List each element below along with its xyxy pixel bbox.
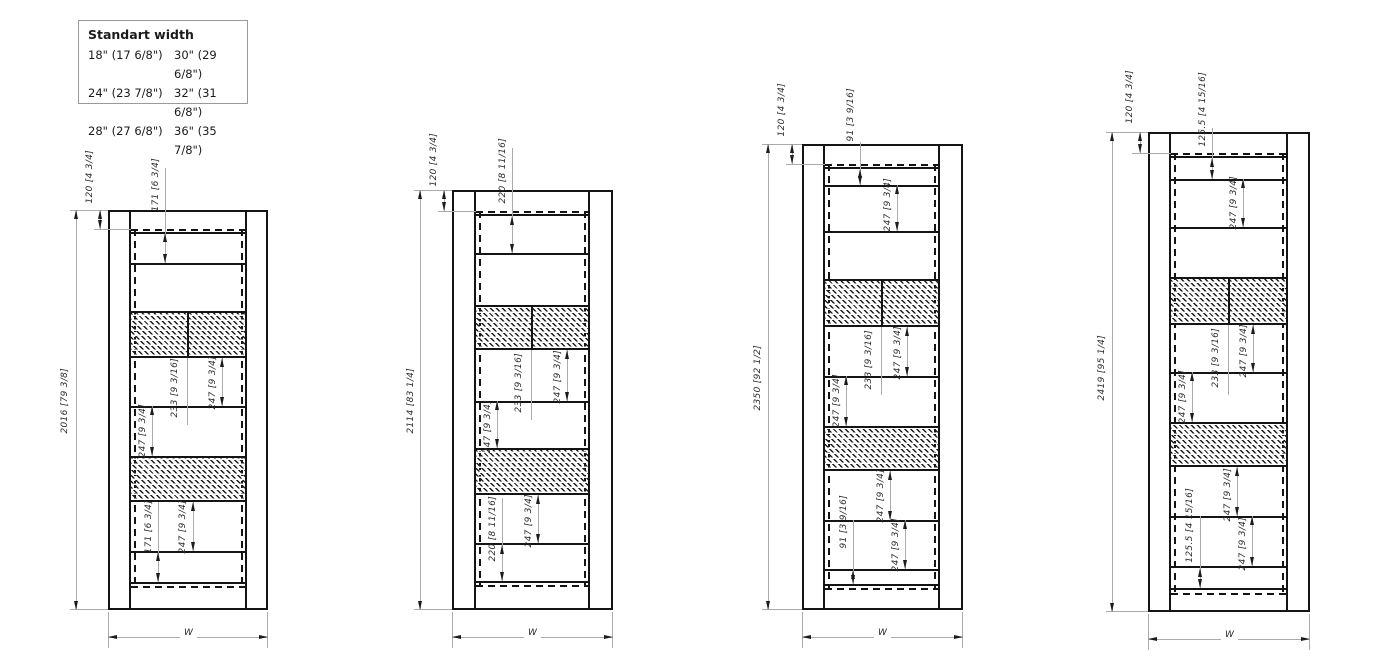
dim-arrow <box>766 144 770 153</box>
legend-grid: 18" (17 6/8") 30" (29 6/8") 24" (23 7/8"… <box>88 46 238 160</box>
dim-arrow <box>442 190 446 199</box>
dim-label: 171 [6 3/4] <box>151 158 162 211</box>
dim-label-height: 2016 [79 3/8] <box>60 368 71 434</box>
dim-label-height: 2350 [92 1/2] <box>753 345 764 411</box>
dim-label-top-offset: 120 [4 3/4] <box>1125 70 1136 123</box>
rail-line <box>131 232 245 234</box>
dim-label: 125.5 [4 15/16] <box>1185 488 1196 563</box>
dim-label: 233 [9 3/16] <box>170 358 181 417</box>
dim-arrow <box>790 144 794 153</box>
dim-arrow <box>1250 516 1254 525</box>
ext-line <box>94 229 131 230</box>
dim-arrow <box>790 155 794 164</box>
ext-line <box>1309 614 1310 650</box>
dim-arrow <box>903 560 907 569</box>
dim-arrow <box>1251 363 1255 372</box>
dim-arrow <box>1138 132 1142 141</box>
legend-entry: 24" (23 7/8") <box>88 84 174 122</box>
dim-arrow <box>1210 170 1214 179</box>
dim-label: 247 [9 3/4] <box>876 469 887 522</box>
hatch-divider <box>881 279 883 327</box>
dim-arrow <box>851 575 855 584</box>
dim-label: 247 [9 3/4] <box>883 178 894 231</box>
dim-arrow <box>1110 132 1114 141</box>
dim-label: 233 [9 3/16] <box>1211 328 1222 387</box>
dim-arrow <box>500 572 504 581</box>
dim-arrow <box>156 552 160 561</box>
rail-line <box>1171 566 1286 568</box>
dim-label: 247 [9 3/4] <box>832 374 843 427</box>
dim-label: 233 [9 3/16] <box>514 353 525 412</box>
dim-arrow <box>888 471 892 480</box>
legend-entry: 28" (27 6/8") <box>88 122 174 160</box>
ext-line <box>438 211 476 212</box>
legend-title: Standart width <box>88 27 238 42</box>
hatch-divider <box>187 311 189 358</box>
dim-arrow <box>1110 603 1114 612</box>
hatch-panel <box>825 426 938 471</box>
hidden-edge-line <box>1171 153 1286 155</box>
dim-arrow <box>495 401 499 410</box>
door-2-stile-right <box>588 190 590 610</box>
dim-arrow <box>802 635 811 639</box>
dim-arrow <box>895 185 899 194</box>
dim-arrow <box>565 350 569 359</box>
legend-entry: 36" (35 7/8") <box>174 122 238 160</box>
dim-arrow <box>150 406 154 415</box>
dim-arrow <box>1250 557 1254 566</box>
hidden-edge-line <box>1171 593 1286 595</box>
dim-arrow <box>1138 144 1142 153</box>
hidden-edge-line <box>476 585 588 587</box>
rail-line <box>476 214 588 216</box>
dim-arrow <box>1190 413 1194 422</box>
rail-line <box>825 167 938 169</box>
leader-line <box>881 327 882 395</box>
dim-arrow <box>1251 325 1255 334</box>
dim-label: 171 [6 3/4] <box>144 500 155 553</box>
dim-arrow <box>220 397 224 406</box>
dim-line <box>158 502 159 582</box>
dim-label-height: 2419 [95 1/4] <box>1097 335 1108 401</box>
dim-label-width: W <box>874 628 891 638</box>
dim-label: 247 [9 3/4] <box>1223 468 1234 521</box>
dim-arrow <box>1235 507 1239 516</box>
rail-line <box>1171 588 1286 590</box>
dim-label: 220 [8 11/16] <box>498 138 509 204</box>
rail-line <box>825 185 938 187</box>
rail-line <box>825 231 938 233</box>
dim-arrow <box>1301 637 1310 641</box>
dim-arrow <box>418 601 422 610</box>
door-3-stile-right <box>938 144 940 610</box>
dim-arrow <box>858 176 862 185</box>
dim-label: 247 [9 3/4] <box>524 494 535 547</box>
ext-line <box>786 164 825 165</box>
door-1-stile-left <box>129 210 131 610</box>
dim-label: 220 [8 11/16] <box>488 496 499 562</box>
dim-label-height: 2114 [83 1/4] <box>406 368 417 434</box>
dim-line <box>1112 132 1113 612</box>
dim-label: 91 [3 9/16] <box>839 495 850 548</box>
dim-label: 247 [9 3/4] <box>1238 517 1249 570</box>
legend-entry: 18" (17 6/8") <box>88 46 174 84</box>
hidden-edge-line <box>825 164 938 166</box>
dim-arrow <box>150 447 154 456</box>
leader-line <box>531 350 532 420</box>
dim-arrow <box>500 545 504 554</box>
dim-label: 247 [9 3/4] <box>891 518 902 571</box>
dim-label-width: W <box>180 628 197 638</box>
ext-line <box>1148 614 1149 650</box>
hatch-panel <box>476 448 588 495</box>
dim-label-top-offset: 120 [4 3/4] <box>429 133 440 186</box>
dim-arrow <box>1235 467 1239 476</box>
dim-label: 91 [3 9/16] <box>846 88 857 141</box>
dim-arrow <box>905 327 909 336</box>
dim-arrow <box>156 573 160 582</box>
dim-arrow <box>220 358 224 367</box>
dim-arrow <box>452 635 461 639</box>
legend-box: Standart width 18" (17 6/8") 30" (29 6/8… <box>78 20 248 104</box>
dim-arrow <box>510 216 514 225</box>
dim-arrow <box>895 222 899 231</box>
dim-label: 247 [9 3/4] <box>1229 176 1240 229</box>
dim-arrow <box>536 534 540 543</box>
hidden-edge-line <box>584 211 586 585</box>
hidden-edge-line <box>131 586 245 588</box>
dim-label-top-offset: 120 [4 3/4] <box>85 150 96 203</box>
dim-label-width: W <box>1221 630 1238 640</box>
dim-arrow <box>905 367 909 376</box>
hidden-edge-line <box>476 211 588 213</box>
dim-arrow <box>98 220 102 229</box>
dim-arrow <box>495 439 499 448</box>
rail-line <box>825 569 938 571</box>
dim-arrow <box>1190 372 1194 381</box>
ext-line <box>802 612 803 648</box>
dim-arrow <box>1198 579 1202 588</box>
dim-arrow <box>510 244 514 253</box>
leader-line <box>187 358 188 425</box>
dim-arrow <box>418 190 422 199</box>
dim-label: 233 [9 3/16] <box>864 330 875 389</box>
dim-arrow <box>442 202 446 211</box>
dim-label-top-offset: 120 [4 3/4] <box>777 83 788 136</box>
dim-arrow <box>1210 158 1214 167</box>
dim-label: 247 [9 3/4] <box>553 350 564 403</box>
dim-arrow <box>954 635 963 639</box>
dim-arrow <box>536 495 540 504</box>
dim-arrow <box>766 601 770 610</box>
leader-line <box>1228 325 1229 395</box>
dim-line <box>1200 516 1201 588</box>
dim-line <box>76 210 77 610</box>
dim-line <box>512 148 513 253</box>
dim-line <box>165 168 166 263</box>
dim-arrow <box>1148 637 1157 641</box>
ext-line <box>612 612 613 648</box>
ext-line <box>962 612 963 648</box>
rail-line <box>1171 156 1286 158</box>
dim-label-width: W <box>524 628 541 638</box>
dim-arrow <box>259 635 268 639</box>
dim-label: 247 [9 3/4] <box>1239 324 1250 377</box>
hidden-edge-line <box>131 229 245 231</box>
dim-label: 247 [9 3/4] <box>483 400 494 453</box>
dim-arrow <box>191 542 195 551</box>
dim-arrow <box>604 635 613 639</box>
dim-arrow <box>903 520 907 529</box>
dim-arrow <box>98 210 102 219</box>
door-4-stile-right <box>1286 132 1288 612</box>
ext-line <box>452 612 453 648</box>
legend-entry: 30" (29 6/8") <box>174 46 238 84</box>
dim-label: 247 [9 3/4] <box>208 356 219 409</box>
dim-line <box>502 498 503 581</box>
hatch-divider <box>531 305 533 350</box>
ext-line <box>108 612 109 648</box>
hatch-panel <box>1171 422 1286 467</box>
dim-arrow <box>163 254 167 263</box>
ext-line <box>1132 153 1171 154</box>
dim-label: 247 [9 3/4] <box>138 404 149 457</box>
dim-label: 247 [9 3/4] <box>1178 370 1189 423</box>
rail-line <box>476 581 588 583</box>
hidden-edge-line <box>479 211 481 585</box>
drawing-canvas: Standart width 18" (17 6/8") 30" (29 6/8… <box>0 0 1400 670</box>
dim-arrow <box>74 210 78 219</box>
rail-line <box>825 584 938 586</box>
dim-arrow <box>1241 218 1245 227</box>
dim-label: 247 [9 3/4] <box>178 500 189 553</box>
dim-arrow <box>844 417 848 426</box>
rail-line <box>131 582 245 584</box>
dim-arrow <box>565 392 569 401</box>
dim-line <box>768 144 769 610</box>
rail-line <box>131 263 245 265</box>
door-1-stile-right <box>245 210 247 610</box>
dim-label: 125.5 [4 15/16] <box>1198 72 1209 147</box>
dim-arrow <box>191 502 195 511</box>
dim-arrow <box>1198 568 1202 577</box>
dim-line <box>420 190 421 610</box>
dim-arrow <box>1241 179 1245 188</box>
hatch-divider <box>1228 277 1230 325</box>
dim-label: 247 [9 3/4] <box>893 326 904 379</box>
dim-arrow <box>108 635 117 639</box>
ext-line <box>267 612 268 648</box>
dim-arrow <box>74 601 78 610</box>
dim-arrow <box>844 376 848 385</box>
hidden-edge-line <box>825 588 938 590</box>
hatch-panel <box>131 456 245 502</box>
rail-line <box>476 253 588 255</box>
legend-entry: 32" (31 6/8") <box>174 84 238 122</box>
dim-arrow <box>163 233 167 242</box>
